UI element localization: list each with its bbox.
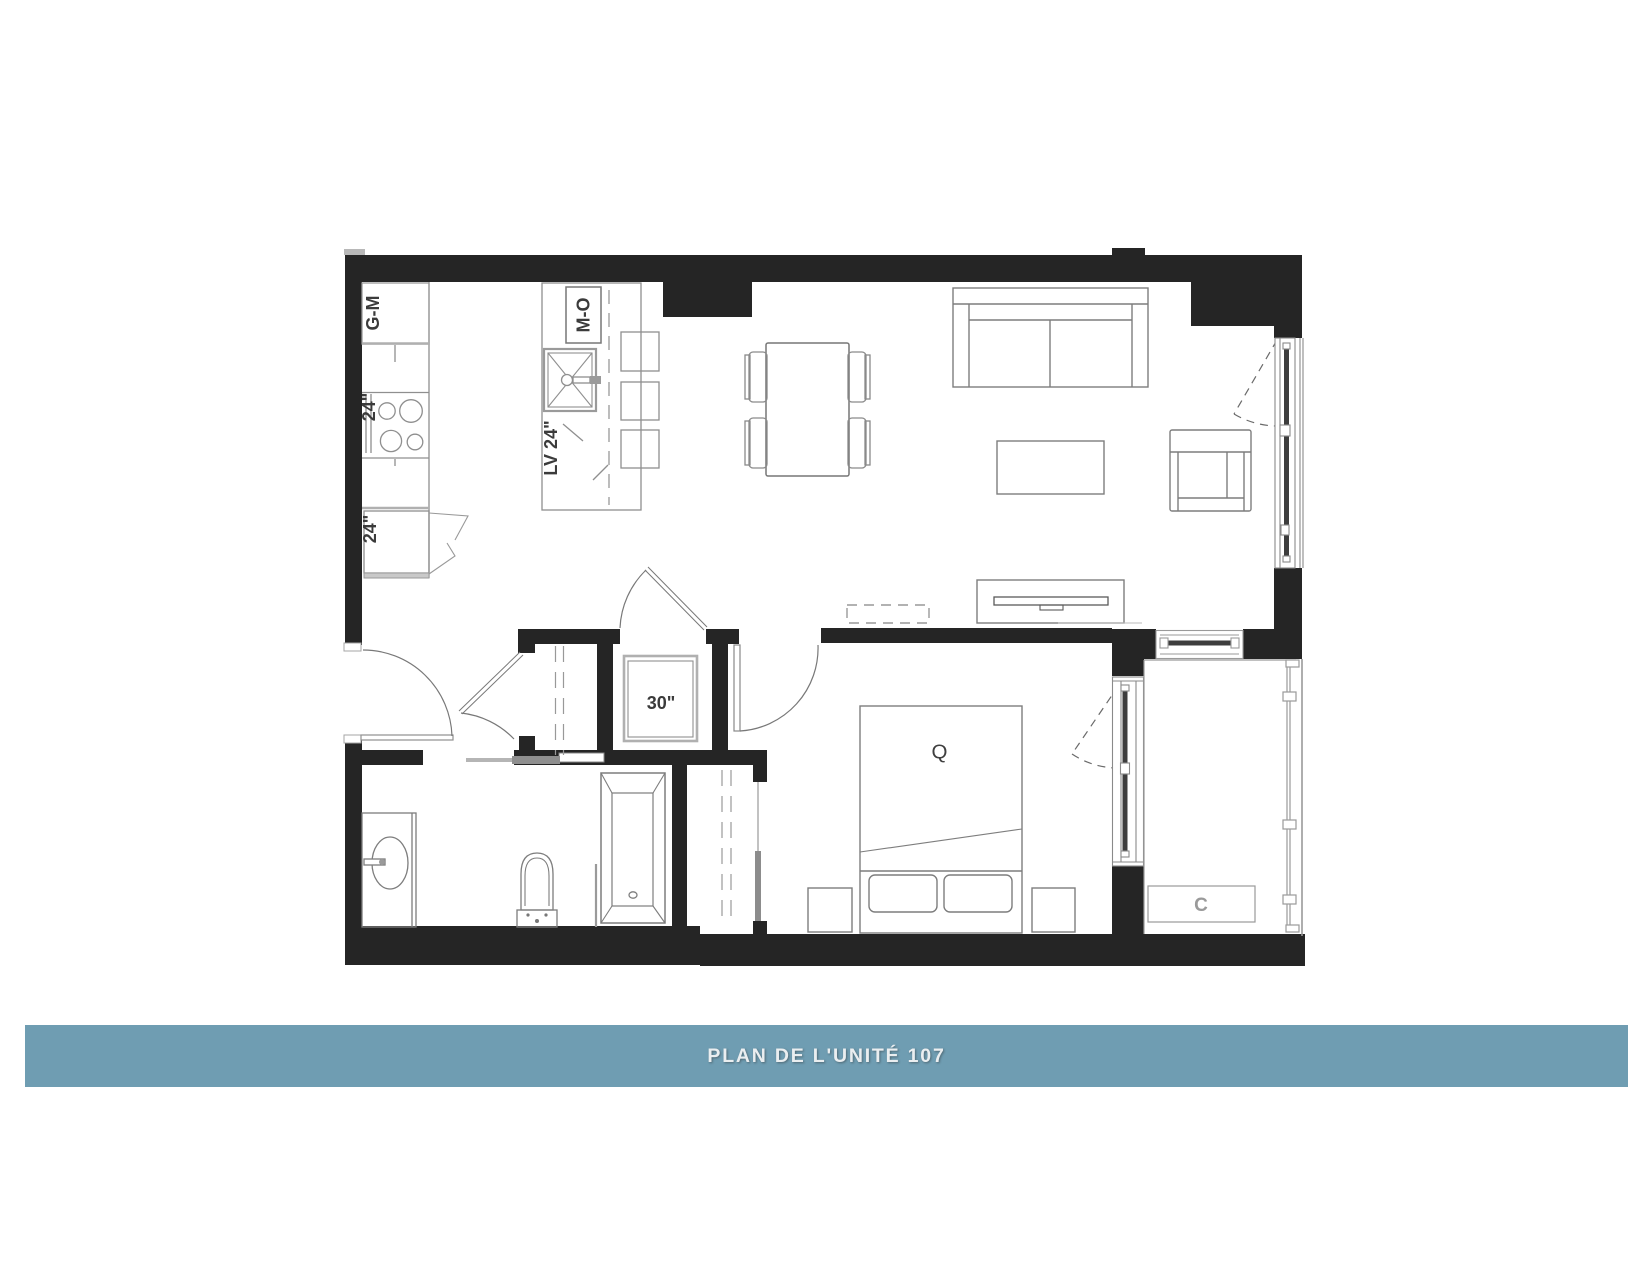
svg-text:C: C xyxy=(1194,895,1208,916)
svg-text:M-O: M-O xyxy=(574,298,594,333)
svg-text:LV 24": LV 24" xyxy=(541,420,561,475)
svg-text:24": 24" xyxy=(360,515,380,544)
svg-text:G-M: G-M xyxy=(363,296,383,331)
svg-text:30": 30" xyxy=(647,693,676,713)
svg-text:Q: Q xyxy=(932,741,948,764)
svg-text:24": 24" xyxy=(359,393,379,422)
